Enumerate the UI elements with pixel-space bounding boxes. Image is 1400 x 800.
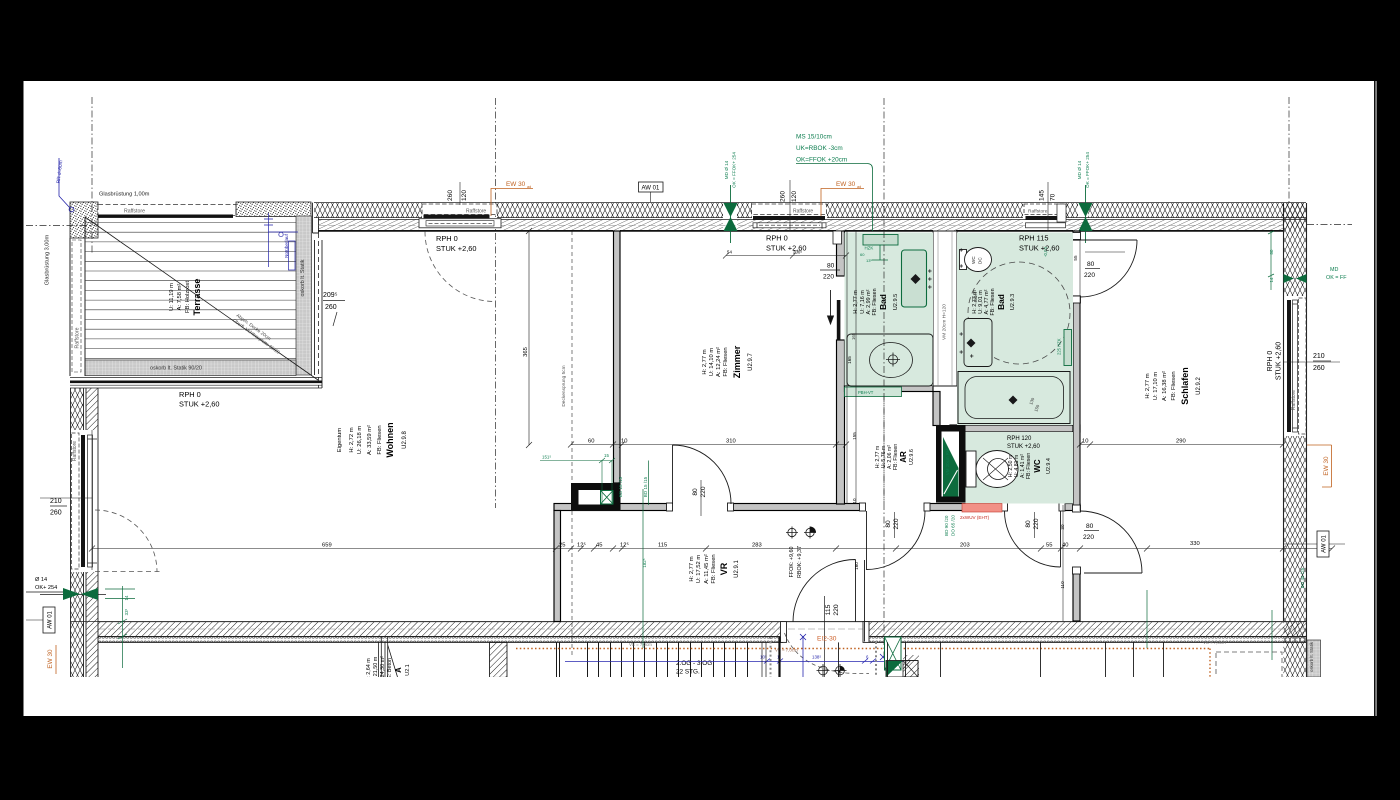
svg-text:14: 14 [1269, 277, 1274, 282]
svg-text:AW 01: AW 01 [48, 610, 54, 628]
svg-text:115: 115 [825, 604, 832, 615]
svg-text:AW 01: AW 01 [1322, 534, 1328, 552]
svg-text:80: 80 [1086, 523, 1094, 530]
svg-text:80: 80 [885, 520, 892, 528]
svg-text:U2.9.1: U2.9.1 [734, 560, 740, 578]
svg-text:115: 115 [658, 543, 667, 549]
svg-text:55: 55 [1046, 543, 1052, 549]
svg-text:12⁵: 12⁵ [620, 542, 629, 549]
svg-text:WC: WC [971, 256, 976, 264]
svg-text:120: 120 [791, 191, 798, 202]
svg-text:2.OG - 3.OG: 2.OG - 3.OG [676, 660, 712, 667]
svg-text:260: 260 [447, 190, 454, 201]
svg-text:RPH 0: RPH 0 [436, 234, 458, 243]
svg-text:12⁵: 12⁵ [577, 542, 586, 549]
svg-text:U: 11,19 m: U: 11,19 m [169, 283, 175, 311]
svg-text:oskorb lt. Statik: oskorb lt. Statik [1309, 641, 1314, 672]
svg-text:10: 10 [621, 439, 627, 445]
svg-text:Terrasse: Terrasse [192, 279, 202, 316]
svg-text:Glasbrüstung 3,00m: Glasbrüstung 3,00m [45, 234, 51, 285]
svg-text:15: 15 [604, 453, 609, 458]
svg-text:OK = FFOK+ 254: OK = FFOK+ 254 [732, 152, 737, 188]
svg-text:13⁵: 13⁵ [866, 258, 872, 263]
svg-text:RPH 120: RPH 120 [1007, 436, 1032, 442]
svg-text:OK = FFOK+ 254: OK = FFOK+ 254 [1085, 152, 1090, 188]
svg-text:U2.1: U2.1 [405, 664, 411, 675]
svg-text:80: 80 [827, 263, 835, 270]
svg-text:138⁵: 138⁵ [812, 655, 821, 660]
svg-text:oskorb lt. Statik: oskorb lt. Statik [300, 259, 306, 296]
svg-text:220: 220 [1083, 534, 1094, 541]
svg-text:EW 30: EW 30 [47, 649, 54, 669]
svg-text:U2.9.2: U2.9.2 [1196, 377, 1202, 395]
svg-text:BD 15 /15: BD 15 /15 [643, 476, 648, 497]
svg-text:STUK +2,60: STUK +2,60 [1276, 342, 1283, 380]
svg-text:MD Ø 14: MD Ø 14 [1077, 160, 1082, 179]
svg-text:80: 80 [692, 488, 699, 496]
svg-text:OK+ 254: OK+ 254 [35, 585, 57, 591]
svg-text:RPH 0: RPH 0 [766, 234, 788, 243]
svg-text:70: 70 [1050, 193, 1057, 201]
svg-text:EI2-30: EI2-30 [817, 636, 837, 643]
svg-text:STUK +2,60: STUK +2,60 [1019, 244, 1059, 253]
svg-text:283: 283 [752, 543, 762, 549]
svg-text:Wohnen: Wohnen [385, 422, 395, 457]
svg-text:A: 12,24 m²: A: 12,24 m² [716, 347, 722, 377]
svg-text:220: 220 [1084, 272, 1095, 279]
svg-text:U2.9.4: U2.9.4 [1046, 458, 1052, 474]
svg-text:Raffstore: Raffstore [1028, 209, 1048, 215]
svg-text:Bad: Bad [996, 294, 1006, 310]
svg-text:A: 16,38 m²: A: 16,38 m² [1162, 371, 1168, 401]
svg-text:A: A [394, 667, 403, 673]
svg-text:U2.9.8: U2.9.8 [402, 431, 408, 449]
svg-text:AR: AR [899, 451, 908, 463]
svg-text:25: 25 [559, 543, 565, 549]
svg-text:Raffstore: Raffstore [75, 327, 81, 348]
svg-text:165: 165 [851, 332, 856, 340]
svg-text:14: 14 [124, 595, 129, 600]
svg-text:45: 45 [596, 543, 602, 549]
svg-text:80: 80 [1087, 261, 1095, 268]
svg-text:110: 110 [1060, 581, 1065, 589]
svg-text:Ø 14: Ø 14 [35, 577, 47, 583]
svg-text:U: 17,10 m: U: 17,10 m [1153, 372, 1159, 401]
svg-text:STUK +2,60: STUK +2,60 [436, 244, 476, 253]
svg-text:H: 2,77 m: H: 2,77 m [689, 556, 695, 581]
svg-text:80: 80 [1025, 520, 1032, 528]
svg-text:220: 220 [833, 604, 840, 616]
svg-text:Zimmer: Zimmer [732, 345, 742, 378]
svg-text:Notüberlauf: Notüberlauf [284, 233, 289, 257]
svg-text:2xWUV (EHT): 2xWUV (EHT) [960, 515, 990, 520]
svg-text:FB: Holzrost: FB: Holzrost [185, 281, 191, 313]
svg-text:659: 659 [322, 543, 332, 549]
svg-text:260: 260 [780, 191, 787, 202]
svg-text:H: 2,77 m: H: 2,77 m [1145, 373, 1151, 398]
svg-text:MS 15/10cm: MS 15/10cm [796, 134, 832, 141]
svg-text:120: 120 [461, 190, 468, 201]
svg-text:VS ≈ 7,0cm: VS ≈ 7,0cm [1203, 640, 1226, 645]
svg-text:182⁵: 182⁵ [642, 558, 647, 567]
svg-text:OK = FF: OK = FF [1326, 275, 1347, 281]
svg-text:U2.9.3: U2.9.3 [1010, 294, 1016, 310]
svg-text:FB: Fliesen: FB: Fliesen [723, 347, 729, 376]
svg-text:U: 14,10 m: U: 14,10 m [709, 348, 715, 377]
svg-text:FFOK: +9,60: FFOK: +9,60 [789, 546, 795, 577]
svg-text:Raffstore: Raffstore [793, 209, 813, 215]
svg-text:209⁵: 209⁵ [323, 292, 338, 299]
svg-text:U2.9.5: U2.9.5 [893, 294, 899, 310]
svg-text:220: 220 [1033, 518, 1040, 529]
svg-text:RPH 115: RPH 115 [1019, 234, 1048, 243]
svg-text:RPH 0: RPH 0 [179, 390, 201, 399]
svg-text:U: 26,18 m: U: 26,18 m [357, 426, 363, 455]
svg-text:Raffstore: Raffstore [466, 209, 486, 215]
svg-text:30: 30 [1060, 524, 1065, 530]
svg-text:310: 310 [726, 439, 736, 445]
svg-text:WC: WC [1033, 459, 1042, 473]
svg-text:210: 210 [50, 498, 62, 505]
svg-text:EW 30: EW 30 [506, 181, 526, 188]
svg-text:A: 33,59 m²: A: 33,59 m² [367, 425, 373, 455]
svg-text:365: 365 [523, 347, 529, 357]
svg-text:RPH 0: RPH 0 [1267, 351, 1274, 372]
svg-text:A: 7,58 m²: A: 7,58 m² [177, 284, 183, 311]
svg-text:145: 145 [1039, 190, 1046, 201]
svg-text:Raffstore: Raffstore [72, 441, 78, 461]
svg-text:160: 160 [854, 562, 859, 570]
svg-text:203: 203 [960, 543, 970, 549]
svg-text:FB: Fliesen: FB: Fliesen [377, 425, 383, 454]
svg-text:STUK +2,60: STUK +2,60 [1007, 444, 1041, 450]
svg-text:DO 65 /20: DO 65 /20 [951, 515, 956, 536]
svg-text:AW 01: AW 01 [642, 186, 660, 192]
svg-text:155: 155 [852, 432, 857, 440]
svg-text:330: 330 [1190, 541, 1200, 547]
svg-text:260: 260 [1313, 365, 1325, 372]
svg-text:10: 10 [852, 498, 857, 504]
svg-text:220: 220 [823, 274, 834, 281]
svg-text:54: 54 [727, 250, 732, 255]
svg-text:BD 45 /25: BD 45 /25 [1300, 567, 1305, 588]
svg-text:Schlafen: Schlafen [1180, 367, 1190, 405]
svg-text:FB: Fliesen: FB: Fliesen [711, 554, 717, 583]
svg-text:oskorb lt. Statik 90/20: oskorb lt. Statik 90/20 [150, 366, 202, 372]
svg-text:Raffstore: Raffstore [1291, 390, 1297, 410]
svg-text:151⁵: 151⁵ [542, 455, 551, 460]
svg-text:HZK: HZK [865, 246, 874, 251]
svg-text:U2.9.6: U2.9.6 [909, 449, 915, 465]
svg-text:FB: Fliesen: FB: Fliesen [1171, 371, 1177, 400]
svg-text:H: 2,77 m: H: 2,77 m [702, 349, 708, 374]
svg-text:60: 60 [860, 252, 865, 257]
svg-text:Deckensprung 5cm: Deckensprung 5cm [561, 365, 567, 406]
svg-text:225 HZK: 225 HZK [1057, 338, 1062, 355]
svg-text:STUK +2,60: STUK +2,60 [179, 400, 219, 409]
svg-text:BD 15 /15: BD 15 /15 [618, 476, 623, 497]
svg-text:EW 30: EW 30 [836, 181, 856, 188]
svg-text:H: 2,72 m: H: 2,72 m [349, 427, 355, 452]
svg-text:BD 90 /20: BD 90 /20 [944, 515, 949, 536]
svg-text:55: 55 [1073, 255, 1078, 261]
svg-text:10: 10 [1082, 439, 1088, 445]
svg-text:VS = 7,0cm: VS = 7,0cm [629, 642, 652, 647]
svg-text:MD: MD [1330, 267, 1338, 273]
svg-text:MD Ø 14: MD Ø 14 [724, 160, 729, 179]
svg-text:UK=RBOK -3cm: UK=RBOK -3cm [796, 145, 843, 152]
svg-text:RBOK: +9,37: RBOK: +9,37 [797, 546, 803, 578]
svg-text:Glasbrüstung 1,00m: Glasbrüstung 1,00m [99, 192, 150, 198]
svg-text:260: 260 [50, 510, 62, 517]
svg-text:U: 17,52 m: U: 17,52 m [696, 555, 702, 584]
svg-text:33⁵: 33⁵ [124, 608, 129, 615]
svg-text:220: 220 [893, 518, 900, 529]
svg-text:U2.9.7: U2.9.7 [748, 353, 754, 371]
svg-text:290: 290 [1176, 439, 1186, 445]
svg-text:DC: DC [978, 257, 983, 264]
svg-text:VR: VR [719, 562, 729, 575]
svg-text:FB: Fliesen: FB: Fliesen [1026, 453, 1032, 479]
svg-text:OK=FFOK +20cm: OK=FFOK +20cm [796, 157, 847, 164]
svg-text:VM 20cm RH: VM 20cm RH [945, 449, 950, 475]
svg-text:22 STG.: 22 STG. [676, 669, 700, 676]
svg-text:260: 260 [325, 304, 337, 311]
svg-text:210: 210 [1313, 353, 1325, 360]
svg-text:Eigentum: Eigentum [337, 428, 343, 453]
svg-text:A: 11,45 m²: A: 11,45 m² [704, 554, 710, 584]
svg-text:80: 80 [1269, 249, 1274, 254]
svg-text:Raffstore: Raffstore [124, 209, 145, 215]
svg-text:165: 165 [847, 356, 852, 364]
svg-text:Bad: Bad [878, 294, 888, 310]
svg-text:PBH-VT: PBH-VT [858, 390, 874, 395]
svg-text:EW 30: EW 30 [1323, 456, 1330, 476]
svg-text:200⁵: 200⁵ [793, 250, 802, 255]
svg-text:60: 60 [588, 439, 594, 445]
svg-text:VM 20cm H=120: VM 20cm H=120 [942, 304, 948, 340]
